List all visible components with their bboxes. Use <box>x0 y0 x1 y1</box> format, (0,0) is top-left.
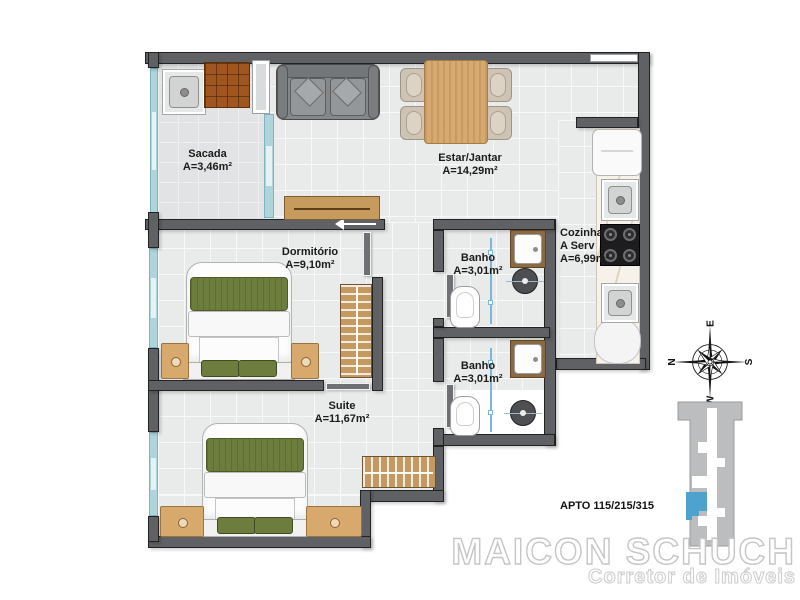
bed-cushion <box>217 517 256 534</box>
room-area: A=3,01m² <box>438 373 518 386</box>
suite-window <box>149 432 158 516</box>
room-area: A=9,10m² <box>250 259 370 272</box>
kitchen-counter-end <box>594 318 641 364</box>
wall-segment <box>360 490 444 502</box>
balcony-sink <box>163 70 205 114</box>
bed-blanket <box>206 438 304 472</box>
room-name: Sacada <box>160 148 255 161</box>
bedroom-window <box>149 248 158 348</box>
room-name: A Serv <box>560 240 615 253</box>
room-name: Estar/Jantar <box>408 152 532 165</box>
bed <box>202 423 308 537</box>
nightstand <box>161 343 189 379</box>
bathroom-sink <box>514 234 542 264</box>
dining-chair <box>484 106 512 140</box>
compass-letter-north: N <box>667 358 678 365</box>
bed-fold <box>204 472 306 498</box>
sofa <box>276 64 380 120</box>
kitchen-sink <box>602 180 638 220</box>
room-name: Dormitório <box>250 246 370 259</box>
room-area: A=11,67m² <box>292 413 392 426</box>
wall-segment <box>433 327 550 338</box>
room-label-banho2: Banho A=3,01m² <box>438 360 518 386</box>
room-label-banho1: Banho A=3,01m² <box>438 252 518 278</box>
building-key-plan <box>668 398 748 548</box>
room-name: Banho <box>438 360 518 373</box>
suite-door-leaf <box>326 383 370 390</box>
bed-cushion <box>238 360 277 377</box>
bed <box>186 262 292 380</box>
room-area: A=3,46m² <box>160 161 255 174</box>
sideboard <box>284 196 380 220</box>
sofa-armrest <box>277 65 288 119</box>
wardrobe <box>340 284 372 378</box>
barbecue-grill <box>204 62 250 108</box>
compass-letter-east: E <box>706 320 717 327</box>
bed-fold <box>188 311 290 337</box>
dining-chair <box>484 68 512 102</box>
room-area: A=3,01m² <box>438 265 518 278</box>
bathroom-sink <box>514 344 542 374</box>
room-label-dormitorio: Dormitório A=9,10m² <box>250 246 370 272</box>
balcony-door <box>252 60 270 114</box>
room-name: Banho <box>438 252 518 265</box>
balcony-divider-glass <box>264 114 274 218</box>
bed-cushion <box>201 360 240 377</box>
sofa-armrest <box>368 65 379 119</box>
wall-segment <box>148 52 159 68</box>
unit-number-label: APTO 115/215/315 <box>560 500 654 512</box>
laundry-tank <box>602 284 638 322</box>
nightstand <box>306 506 362 537</box>
shower-head <box>510 400 536 426</box>
wall-segment <box>433 219 555 230</box>
nightstand <box>160 506 204 537</box>
floor-plan-canvas: Sacada A=3,46m² Estar/Jantar A=14,29m² C… <box>0 0 800 600</box>
room-label-cozinha: Cozinha A Serv A=6,99m² <box>560 227 615 266</box>
bed-blanket <box>190 277 288 311</box>
entry-door <box>590 54 638 62</box>
door-swing-arrow <box>338 223 376 225</box>
watermark-tagline: Corretor de Imóveis <box>588 566 796 589</box>
room-name: Suite <box>292 400 392 413</box>
toilet <box>450 286 480 328</box>
wall-segment <box>433 318 444 327</box>
compass-rose: E N S W <box>666 316 754 408</box>
wall-segment <box>148 536 371 548</box>
wall-segment <box>148 380 324 391</box>
room-label-estar: Estar/Jantar A=14,29m² <box>408 152 532 178</box>
wall-segment <box>372 277 383 391</box>
toilet <box>450 396 480 436</box>
balcony-glass-rail <box>150 68 158 214</box>
plumbing-valve <box>488 300 493 305</box>
wardrobe <box>362 456 436 488</box>
compass-letter-south: S <box>744 358 754 365</box>
compass-star <box>694 346 727 379</box>
room-label-sacada: Sacada A=3,46m² <box>160 148 255 174</box>
wall-segment <box>148 516 159 542</box>
plumbing-valve <box>488 410 493 415</box>
room-area: A=6,99m² <box>560 253 615 266</box>
wall-segment <box>576 117 638 128</box>
refrigerator <box>592 129 642 176</box>
dining-table <box>424 60 488 144</box>
building-corridor <box>707 408 717 540</box>
wall-segment <box>148 212 159 248</box>
bed-cushion <box>254 517 293 534</box>
room-label-suite: Suite A=11,67m² <box>292 400 392 426</box>
room-area: A=14,29m² <box>408 165 532 178</box>
room-name: Cozinha <box>560 227 615 240</box>
nightstand <box>291 343 319 379</box>
